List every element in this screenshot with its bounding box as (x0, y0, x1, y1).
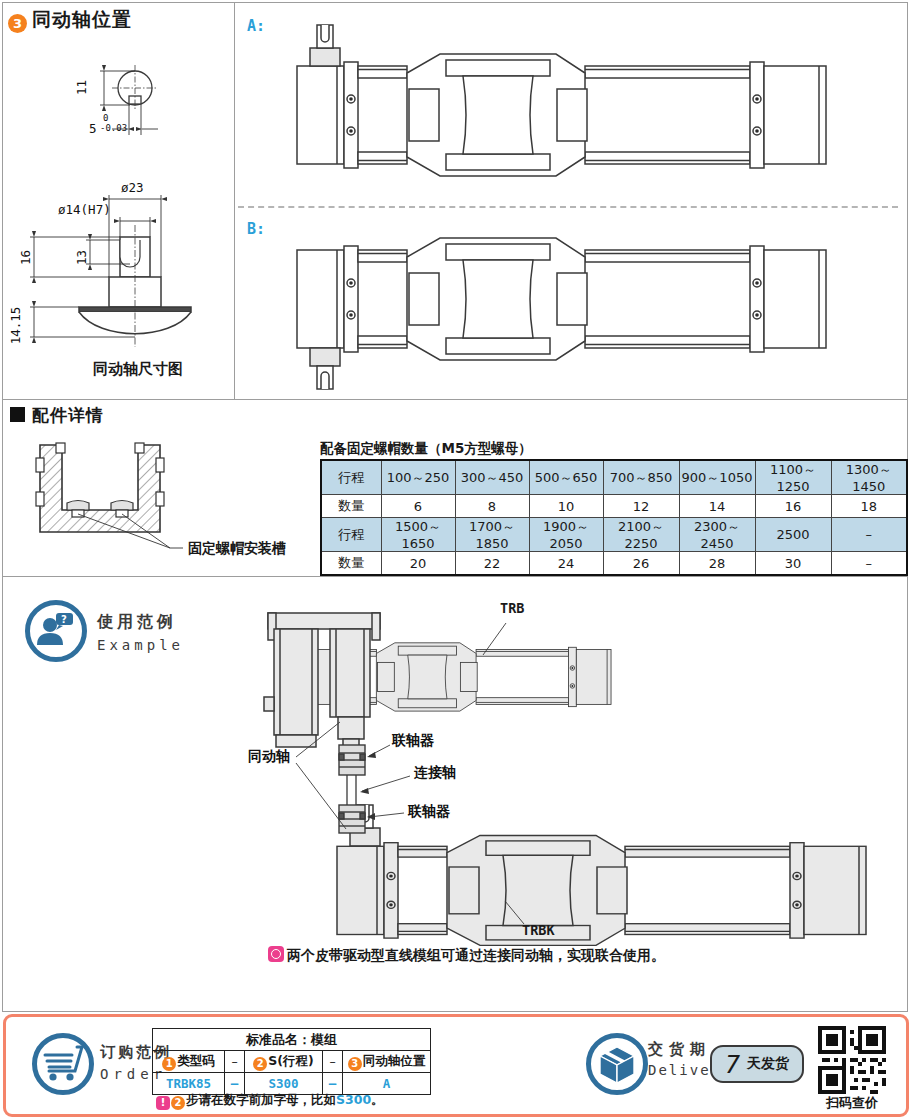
order-note: !2步请在数字前加字母，比如S300。 (156, 1092, 384, 1110)
order-table-header-row: 1类型码 – 2S(行程) – 3同动轴位置 (153, 1051, 431, 1073)
qr-caption: 扫码查价 (814, 1094, 890, 1112)
trbk-label: TRBK (522, 922, 555, 938)
order-note-period: 。 (371, 1092, 384, 1107)
qty-cell: 14 (679, 495, 755, 518)
example-person-icon: ? (25, 600, 87, 662)
stroke-cell: 1700～1850 (455, 518, 529, 552)
qty-cell: 26 (603, 552, 679, 576)
qty-cell: 28 (679, 552, 755, 576)
dim-dia14: ø14(H7) (58, 202, 111, 217)
stroke-cell: 700～850 (603, 460, 679, 495)
coupling-bottom (339, 805, 365, 833)
order-note-text: 步请在数字前加字母，比如 (186, 1092, 336, 1107)
sync-shaft-dimension-drawing (8, 55, 230, 355)
dim-5-tol-lower: -0.03 (100, 124, 127, 133)
square-bullet-icon (10, 407, 25, 422)
qty-cell: – (831, 552, 907, 576)
dim-13: 13 (74, 250, 89, 265)
delivery-title-cn: 交货期 (648, 1040, 711, 1059)
header-qty: 数量 (321, 552, 381, 576)
table-row-qty-2: 数量 20 22 24 26 28 30 – (321, 552, 907, 576)
qty-cell: 16 (755, 495, 831, 518)
delivery-days-suffix: 天发货 (747, 1055, 789, 1073)
qty-cell: 12 (603, 495, 679, 518)
order-col-position: 3同动轴位置 (343, 1051, 431, 1073)
qty-cell: 8 (455, 495, 529, 518)
stroke-cell: 1300～1450 (831, 460, 907, 495)
dim-5: 5 (89, 121, 97, 136)
exclamation-badge: ! (156, 1096, 170, 1110)
qty-cell: 22 (455, 552, 529, 576)
dim-11: 11 (74, 80, 89, 95)
stroke-cell: 2100～2250 (603, 518, 679, 552)
package-icon (586, 1033, 648, 1095)
order-col-position-label: 同动轴位置 (363, 1053, 426, 1068)
trb-label: TRB (500, 600, 524, 616)
header-qty: 数量 (321, 495, 381, 518)
nut-slot-label: 固定螺帽安装槽 (188, 540, 286, 558)
order-col-stroke-label: S(行程) (268, 1053, 313, 1068)
coupling-top-label: 联轴器 (392, 732, 434, 750)
section-position-header: 3 同动轴位置 (8, 7, 132, 33)
section-number-badge: 3 (8, 14, 27, 33)
section-accessory-header: 配件详情 (10, 404, 104, 427)
note-circle-icon (268, 946, 284, 962)
stroke-cell: 1900～2050 (529, 518, 603, 552)
stroke-cell: – (831, 518, 907, 552)
qty-cell: 20 (381, 552, 455, 576)
order-table-title: 标准品名：模组 (153, 1029, 431, 1051)
qty-cell: 18 (831, 495, 907, 518)
order-col-type-label: 类型码 (177, 1053, 215, 1068)
order-sep: – (225, 1051, 245, 1073)
example-note-text: 两个皮带驱动型直线模组可通过连接同动轴，实现联合使用。 (287, 947, 665, 963)
section-divider-1 (3, 399, 907, 400)
ab-dashed-divider (238, 206, 898, 208)
usage-example-drawing (240, 595, 910, 955)
accessory-table-title: 配备固定螺帽数量（M5方型螺母） (320, 440, 532, 458)
dim-5-tol-upper: 0 (103, 114, 108, 123)
dimension-drawing-caption: 同动轴尺寸图 (93, 360, 183, 379)
config-b-label: B: (247, 220, 265, 238)
delivery-days-number: 7 (725, 1050, 740, 1079)
header-stroke: 行程 (321, 460, 381, 495)
column-divider (234, 3, 235, 399)
order-col-type: 1类型码 (153, 1051, 225, 1073)
dim-dia23: ø23 (121, 180, 144, 195)
section-divider-2 (3, 576, 907, 577)
badge-1: 1 (162, 1057, 176, 1071)
dim-14-15: 14.15 (8, 307, 23, 345)
badge-3: 3 (348, 1057, 362, 1071)
stroke-cell: 1500～1650 (381, 518, 455, 552)
svg-text:?: ? (61, 614, 67, 625)
stroke-cell: 500～650 (529, 460, 603, 495)
stroke-cell: 2300～2450 (679, 518, 755, 552)
order-sep: – (323, 1051, 343, 1073)
config-a-label: A: (247, 17, 265, 35)
section-position-title: 同动轴位置 (32, 8, 132, 30)
stroke-cell: 900～1050 (679, 460, 755, 495)
order-table-title-row: 标准品名：模组 (153, 1029, 431, 1051)
badge-2: 2 (253, 1057, 267, 1071)
header-stroke: 行程 (321, 518, 381, 552)
nut-quantity-table: 行程 100～250 300～450 500～650 700～850 900～1… (320, 459, 908, 576)
stroke-cell: 300～450 (455, 460, 529, 495)
coupling-bottom-label: 联轴器 (408, 803, 450, 821)
table-row-stroke-1: 行程 100～250 300～450 500～650 700～850 900～1… (321, 460, 907, 495)
qty-cell: 10 (529, 495, 603, 518)
qty-cell: 24 (529, 552, 603, 576)
sync-shaft-label: 同动轴 (248, 748, 290, 766)
module-drawing-config-b (292, 233, 832, 393)
catalog-page: 3 同动轴位置 (0, 0, 910, 1118)
order-note-code: S300 (336, 1092, 371, 1107)
qr-code[interactable] (818, 1026, 886, 1094)
connect-shaft-label: 连接轴 (414, 764, 456, 782)
stroke-cell: 1100～1250 (755, 460, 831, 495)
example-title-en: Example (97, 637, 184, 653)
module-drawing-config-a (292, 23, 832, 179)
order-example-table: 标准品名：模组 1类型码 – 2S(行程) – 3同动轴位置 TRBK85 – … (152, 1028, 431, 1095)
stroke-cell: 100～250 (381, 460, 455, 495)
dim-16: 16 (18, 250, 33, 265)
section-accessory-title: 配件详情 (32, 405, 104, 425)
coupling-top (339, 745, 365, 775)
qty-cell: 30 (755, 552, 831, 576)
delivery-days-box: 7 天发货 (710, 1045, 804, 1083)
example-note: 两个皮带驱动型直线模组可通过连接同动轴，实现联合使用。 (268, 946, 665, 965)
example-title-cn: 使用范例 (97, 612, 177, 633)
note-step-badge: 2 (171, 1096, 185, 1110)
table-row-qty-1: 数量 6 8 10 12 14 16 18 (321, 495, 907, 518)
stroke-cell: 2500 (755, 518, 831, 552)
table-row-stroke-2: 行程 1500～1650 1700～1850 1900～2050 2100～22… (321, 518, 907, 552)
qty-cell: 6 (381, 495, 455, 518)
order-col-stroke: 2S(行程) (245, 1051, 323, 1073)
cart-icon (32, 1033, 94, 1095)
